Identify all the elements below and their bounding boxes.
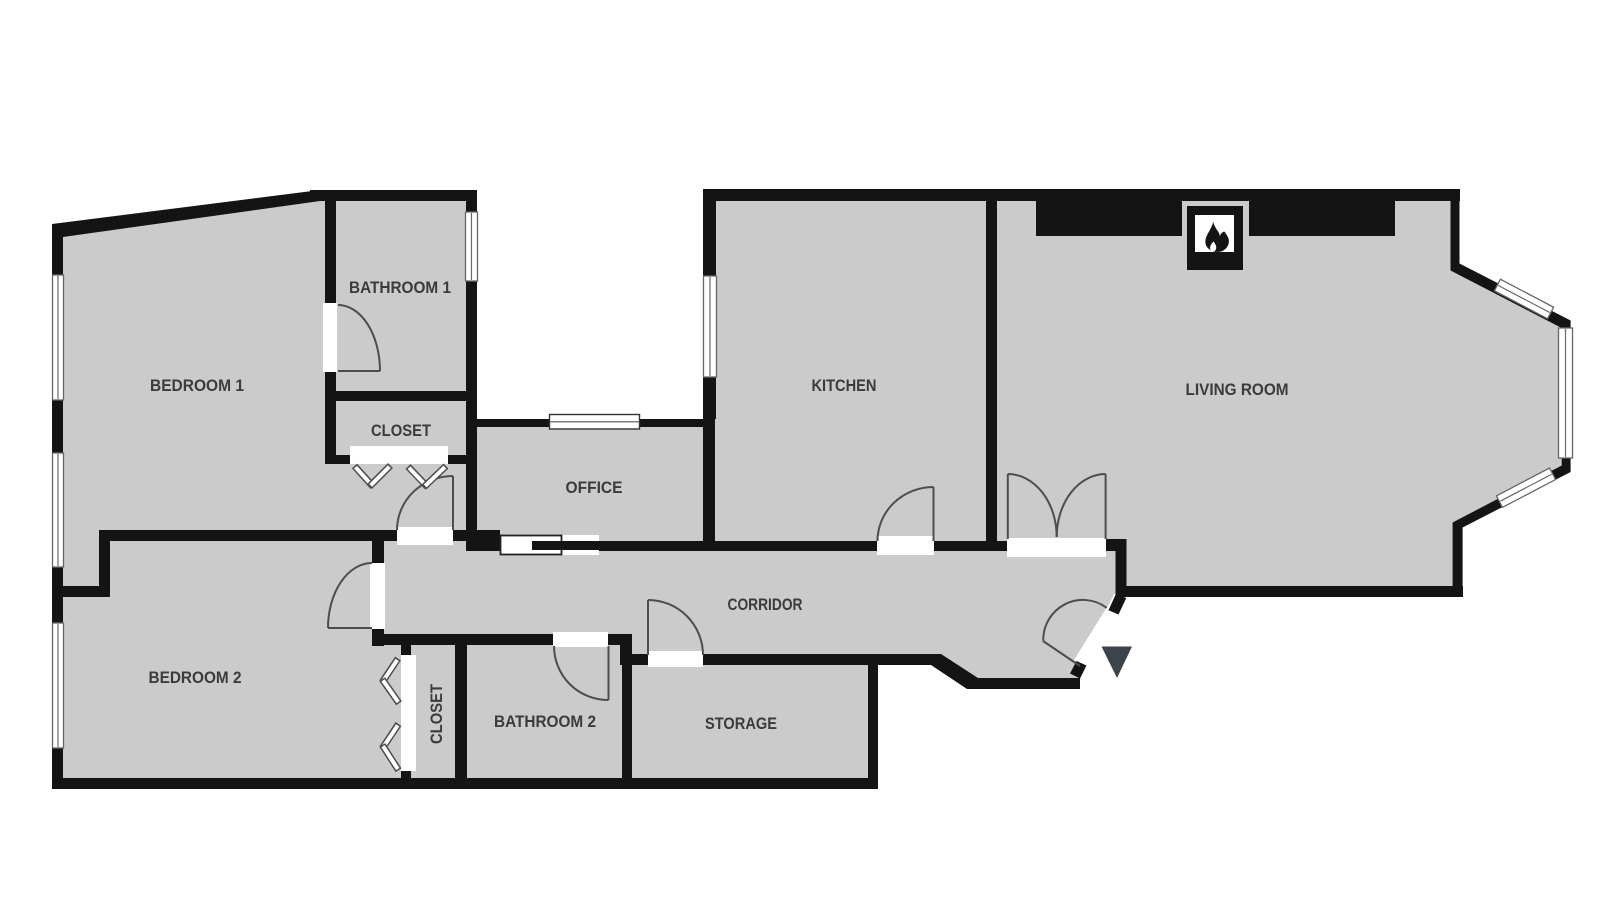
svg-text:BEDROOM 2: BEDROOM 2 — [149, 668, 242, 687]
svg-text:CORRIDOR: CORRIDOR — [728, 595, 803, 614]
svg-text:CLOSET: CLOSET — [371, 421, 432, 440]
svg-text:LIVING ROOM: LIVING ROOM — [1186, 380, 1289, 399]
svg-text:STORAGE: STORAGE — [705, 714, 777, 733]
svg-text:BEDROOM 1: BEDROOM 1 — [150, 376, 244, 395]
svg-text:OFFICE: OFFICE — [566, 478, 623, 497]
svg-text:KITCHEN: KITCHEN — [812, 376, 877, 395]
svg-text:CLOSET: CLOSET — [427, 683, 446, 744]
svg-text:BATHROOM 2: BATHROOM 2 — [494, 712, 596, 731]
svg-text:BATHROOM 1: BATHROOM 1 — [349, 278, 451, 297]
